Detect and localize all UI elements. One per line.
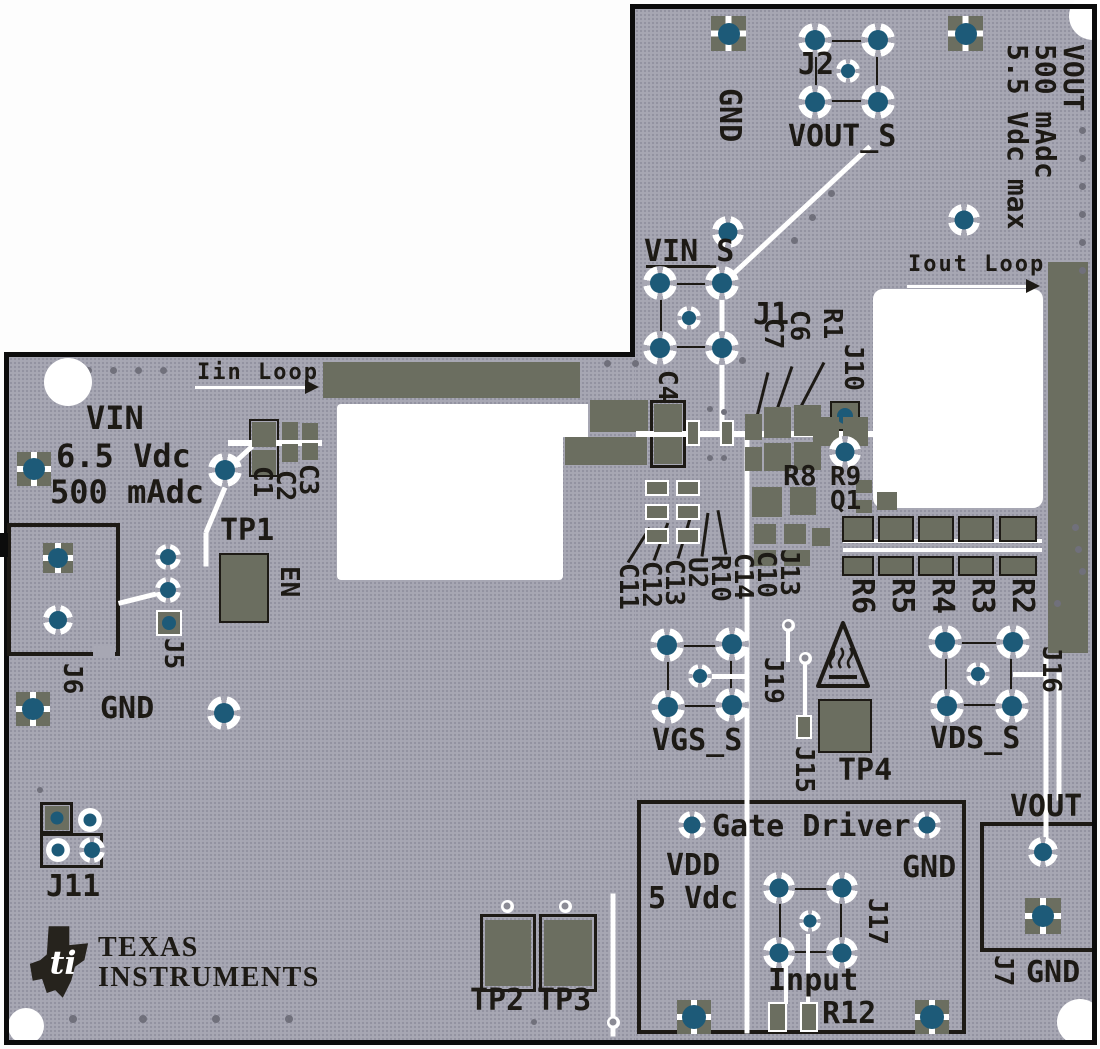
iin-loop-arrow [195, 386, 305, 389]
pad-center [833, 944, 852, 963]
dot-180 [1079, 239, 1086, 246]
dot-164 [135, 367, 142, 374]
label-j11: J11 [46, 872, 100, 902]
pad-center [22, 698, 44, 720]
copper-block-a [590, 400, 648, 432]
pad-center [868, 92, 888, 112]
dot-172 [707, 406, 713, 412]
pad-center [684, 817, 701, 834]
via-vds-s-br [995, 689, 1029, 723]
line-36 [611, 893, 616, 1036]
label-en: EN [276, 566, 302, 597]
pad-center [920, 1005, 944, 1029]
copper-white-iout [873, 289, 1043, 508]
iout-loop-arrow [907, 285, 1026, 288]
trace-j15 [803, 660, 807, 716]
dot-178 [1079, 183, 1086, 190]
pad-center [650, 273, 670, 293]
label-vgs-s: VGS_S [652, 726, 742, 756]
dot-188 [212, 1015, 220, 1023]
pad-center [802, 655, 809, 662]
pad-center [919, 817, 936, 834]
pad-center [162, 616, 176, 630]
sq-102 [282, 444, 298, 462]
dot-177 [1079, 155, 1086, 162]
pad-j11 [45, 806, 69, 830]
pad-vin-left [17, 452, 51, 486]
label-j5: J5 [160, 638, 186, 669]
svg-text:ti: ti [50, 943, 77, 981]
pad-center [770, 879, 789, 898]
sq-71 [654, 404, 682, 432]
dot-163 [110, 367, 117, 374]
pad-center [49, 611, 67, 629]
dot-169 [828, 190, 835, 197]
via-vgs-s-tr [715, 627, 749, 661]
pad-center [682, 1005, 706, 1029]
tp3-pin [559, 900, 572, 913]
via-vin-s-c [677, 306, 701, 330]
via-j17-tr [826, 872, 858, 904]
pad-center [722, 695, 742, 715]
label-r8: R8 [783, 462, 817, 490]
j6-edge-nub [0, 533, 8, 557]
label-j10: J10 [840, 344, 866, 391]
via-vgs-s-bl [651, 690, 685, 724]
brand-texas: TEXAS [98, 934, 199, 962]
label-j2: J2 [798, 50, 834, 80]
dot-191 [37, 787, 43, 793]
pad-j15 [796, 715, 812, 739]
via-vin-s-br [705, 331, 739, 365]
pad-center [562, 903, 569, 910]
via-j11-tr [78, 808, 102, 832]
label-vdd: VDD [666, 851, 720, 881]
line-39 [204, 532, 209, 566]
via-150 [207, 696, 241, 730]
label-500madc: 500 mAdc [50, 476, 204, 508]
label-vout-s: VOUT_S [788, 122, 896, 152]
pad-center [712, 273, 732, 293]
dot-189 [285, 1015, 293, 1023]
via-j7 [1028, 837, 1058, 867]
pad-center [868, 30, 888, 50]
via-vout-s-tr [861, 23, 895, 57]
sq-95 [645, 504, 669, 520]
pad-center [1034, 843, 1052, 861]
dot-185 [1054, 600, 1061, 607]
dot-171 [791, 237, 798, 244]
pad-center [160, 582, 176, 598]
sq-97 [645, 528, 669, 544]
via-vout-s-br [861, 85, 895, 119]
sq-73 [686, 420, 700, 446]
via-vds-s-bl [930, 689, 964, 723]
via-vout-s-bl [798, 85, 832, 119]
pad-center [955, 211, 974, 230]
copper-strip-right [1048, 262, 1088, 653]
pad-center [160, 549, 176, 565]
via-146 [208, 453, 242, 487]
pad-center [935, 632, 955, 652]
pad-center [836, 443, 855, 462]
pad-center [805, 92, 825, 112]
hot-surface-icon [816, 620, 870, 692]
pin-157 [799, 652, 812, 665]
sq-90 [812, 528, 830, 546]
label-r2: R2 [1007, 578, 1037, 614]
rect-201 [1092, 1002, 1097, 1045]
pad-tp3 [544, 920, 592, 986]
copper-white-left [337, 404, 563, 580]
dot-190 [531, 1019, 537, 1025]
pad-center [693, 669, 707, 683]
copper-white-ext [560, 404, 588, 437]
pin-156 [782, 619, 795, 632]
cutout-top-left [44, 358, 92, 406]
sq-93 [645, 480, 669, 496]
via-j5-b [155, 577, 181, 603]
pad-center [23, 458, 45, 480]
label-iin-loop: Iin Loop [197, 362, 319, 384]
label-r3: R3 [967, 578, 997, 614]
via-vgs-s-c [688, 664, 712, 688]
tp2-pin [501, 900, 514, 913]
dot-168 [739, 357, 746, 364]
pad-center [52, 844, 65, 857]
label-r12: R12 [822, 999, 876, 1029]
via-j11-br [79, 837, 105, 863]
j6-notch [93, 646, 115, 658]
pad-center [722, 634, 742, 654]
via-145 [913, 811, 941, 839]
pad-gnd-top [711, 16, 746, 51]
sq-104 [302, 443, 318, 460]
brand-instruments: INSTRUMENTS [98, 964, 320, 992]
sq-96 [676, 504, 700, 520]
via-vds-s-tl [928, 625, 962, 659]
dot-179 [1079, 211, 1086, 218]
label-vin: VIN [86, 402, 144, 434]
label-gnd-left: GND [100, 694, 154, 724]
pad-center [657, 635, 677, 655]
label-tp3: TP3 [537, 986, 591, 1016]
label-vds-s: VDS_S [930, 724, 1020, 754]
label-j19: J19 [760, 657, 786, 704]
pad-center [937, 696, 957, 716]
rect-199 [1092, 4, 1097, 44]
dot-182 [1072, 524, 1079, 531]
rect-203 [4, 1006, 9, 1045]
label-gnd-top: GND [714, 88, 744, 142]
pad-j5 [156, 610, 182, 636]
sq-116 [999, 556, 1037, 576]
pad-center [833, 879, 852, 898]
via-vin-s-tr [705, 266, 739, 300]
label-vout-br: VOUT [1010, 792, 1082, 822]
label-j7: J7 [990, 955, 1016, 986]
label-rating-line2: 500 mAdc [1031, 44, 1059, 179]
pad-center [610, 1019, 617, 1026]
via-j17-c [799, 910, 821, 932]
sq-88 [754, 524, 776, 544]
dot-166 [604, 360, 611, 367]
sq-74 [720, 420, 734, 446]
pad-center [51, 812, 64, 825]
dot-186 [69, 1015, 77, 1023]
via-j5-a [155, 544, 181, 570]
dot-167 [632, 360, 639, 367]
via-vout-s-c [836, 59, 860, 83]
label-input: Input [768, 966, 858, 996]
pad-center [718, 23, 740, 45]
label-c3: C3 [295, 464, 321, 495]
pad-gnd-left [16, 692, 50, 726]
cutout-bottom-left [8, 1008, 44, 1044]
dot-173 [721, 409, 727, 415]
dot-175 [721, 455, 727, 461]
label-5vdc: 5 Vdc [648, 884, 738, 914]
pad-center [504, 903, 511, 910]
sq-99 [252, 422, 276, 447]
label-tp2: TP2 [470, 986, 524, 1016]
line-43 [843, 548, 1042, 552]
label-j13: J13 [776, 549, 802, 596]
pad-gd-corner-left [677, 1000, 711, 1034]
pad-center [84, 842, 100, 858]
sq-107 [842, 516, 874, 542]
pin-160 [607, 1016, 620, 1029]
sq-86 [752, 487, 782, 517]
rect-202 [4, 1040, 46, 1045]
pcb-board-image: tiGNDJ2VOUT_S5.5 Vdc max500 mAdcVOUTVIN_… [0, 0, 1100, 1049]
pad-center [658, 697, 678, 717]
pad-tp1 [219, 553, 269, 623]
pad-j6 [43, 543, 73, 573]
pad-center [955, 23, 977, 45]
label-j7-gnd: GND [1026, 958, 1080, 988]
sq-76 [764, 407, 791, 438]
sq-89 [784, 524, 806, 544]
sq-94 [676, 480, 700, 496]
trace-main-vertical [745, 434, 750, 1033]
label-iout-loop: Iout Loop [908, 254, 1045, 276]
pad-center [84, 814, 97, 827]
pad-center [1003, 632, 1023, 652]
rect-200 [1040, 1040, 1097, 1045]
label-gd-gnd: GND [902, 853, 956, 883]
pad-center [971, 667, 985, 681]
sq-85 [877, 492, 897, 510]
via-j17-tl [763, 872, 795, 904]
pad-center [682, 311, 696, 325]
sq-109 [918, 516, 954, 542]
ti-logo: ti [28, 922, 90, 1002]
label-j15: J15 [791, 746, 817, 793]
label-c4: C4 [654, 370, 680, 401]
label-65vdc: 6.5 Vdc [56, 440, 191, 472]
sq-113 [878, 556, 914, 576]
sq-78 [745, 447, 762, 471]
sq-98 [676, 528, 700, 544]
via-vds-s-tr [996, 625, 1030, 659]
sq-111 [999, 516, 1037, 542]
sq-115 [958, 556, 994, 576]
via-vin-s-tl [643, 266, 677, 300]
label-r5: R5 [887, 578, 917, 614]
sq-110 [958, 516, 994, 542]
label-vin-s: VIN_S [644, 237, 734, 267]
sq-105 [768, 1002, 787, 1032]
pad-center [712, 338, 732, 358]
dot-174 [707, 455, 713, 461]
sq-106 [800, 1002, 818, 1032]
pad-center [804, 915, 817, 928]
pad-center [48, 548, 68, 568]
via-vgs-s-br [715, 688, 749, 722]
arrowhead-icon [1026, 279, 1040, 293]
pad-center [214, 703, 234, 723]
label-c7: C7 [760, 318, 786, 349]
pad-center [215, 460, 235, 480]
label-rating-line1: 5.5 Vdc max [1003, 44, 1031, 229]
sq-101 [282, 422, 298, 440]
label-c6: C6 [786, 310, 812, 341]
sq-108 [878, 516, 914, 542]
via-144 [678, 811, 706, 839]
pad-center [650, 338, 670, 358]
pad-tp4 [818, 699, 872, 753]
pad-center [1002, 696, 1022, 716]
pad-center [785, 622, 792, 629]
pad-center [1032, 905, 1054, 927]
label-tp4: TP4 [838, 756, 892, 786]
copper-bar-iin [323, 362, 580, 398]
label-r6: R6 [847, 578, 877, 614]
dot-176 [1079, 127, 1086, 134]
label-j17: J17 [864, 898, 890, 945]
pad-center [841, 64, 855, 78]
dot-183 [1075, 546, 1082, 553]
label-r1: R1 [819, 308, 845, 339]
copper-block-b [565, 437, 647, 465]
label-j16: J16 [1038, 646, 1064, 693]
dot-170 [809, 214, 816, 221]
dot-181 [1079, 267, 1086, 274]
via-vgs-s-tl [650, 628, 684, 662]
label-j6: J6 [59, 663, 85, 694]
sq-112 [842, 556, 874, 576]
label-tp1: TP1 [220, 516, 274, 546]
dot-187 [139, 1015, 147, 1023]
dot-184 [1079, 568, 1086, 575]
pad-j7 [1025, 898, 1061, 934]
label-rating-line3: VOUT [1059, 44, 1087, 111]
pad-tp2 [485, 920, 531, 986]
pad-top-right [948, 16, 983, 51]
label-r4: R4 [927, 578, 957, 614]
via-vin-s-bl [643, 331, 677, 365]
sq-72 [654, 437, 682, 464]
dot-165 [160, 367, 167, 374]
sq-75 [745, 414, 762, 440]
sq-103 [302, 423, 318, 440]
label-q1: Q1 [830, 488, 861, 514]
via-vds-s-c [966, 662, 990, 686]
sq-114 [918, 556, 954, 576]
pad-center [770, 944, 789, 963]
pad-gd-corner-right [915, 1000, 949, 1034]
via-117 [948, 204, 980, 236]
via-j11-bl [46, 838, 70, 862]
label-gate-driver: Gate Driver [712, 812, 911, 842]
via-j6 [43, 605, 73, 635]
